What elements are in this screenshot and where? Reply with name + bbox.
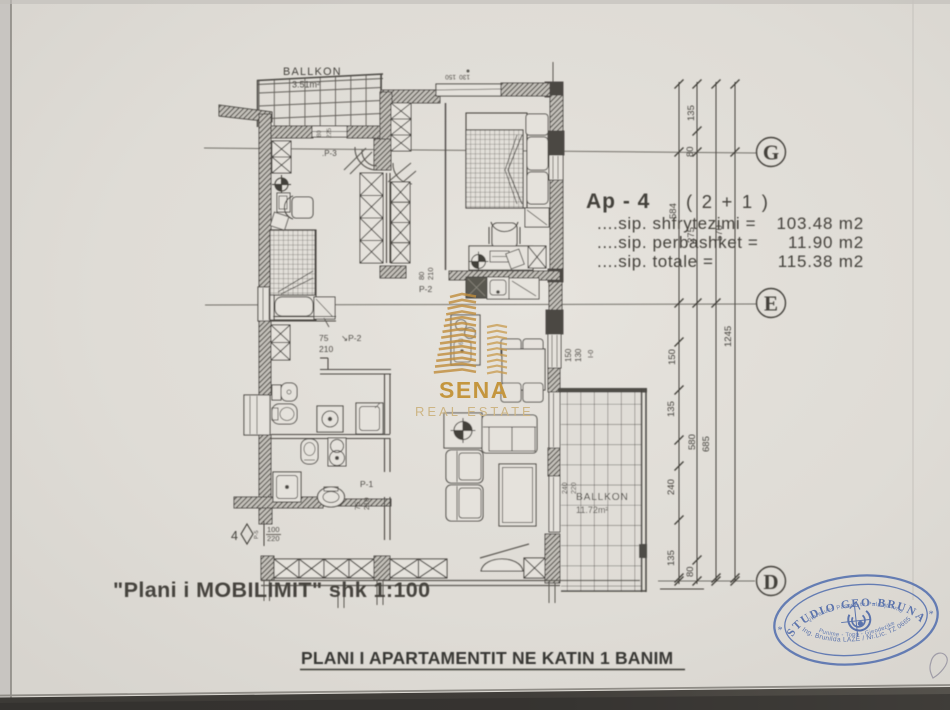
svg-text:.P-3: .P-3: [322, 149, 337, 158]
svg-text:240: 240: [666, 479, 677, 495]
svg-text:BALLKON: BALLKON: [283, 66, 342, 78]
svg-text:80: 80: [417, 272, 426, 280]
svg-text:4: 4: [231, 529, 238, 543]
svg-text:( 2 + 1 ): ( 2 + 1 ): [686, 191, 770, 212]
svg-text:P-5: P-5: [254, 530, 260, 539]
svg-text:685: 685: [701, 436, 712, 452]
svg-text:11.90 m2: 11.90 m2: [788, 233, 864, 252]
svg-text:220: 220: [571, 482, 578, 494]
svg-text:130: 130: [574, 348, 583, 362]
svg-text:SENA: SENA: [439, 377, 509, 403]
svg-text:75: 75: [353, 502, 362, 510]
svg-text:BALLKON: BALLKON: [576, 492, 629, 503]
svg-text:3.51m²: 3.51m²: [292, 80, 320, 90]
svg-text:Ap - 4: Ap - 4: [586, 190, 650, 213]
svg-text:150: 150: [445, 73, 456, 80]
svg-text:130: 130: [459, 73, 470, 80]
svg-text:115.38 m2: 115.38 m2: [778, 252, 864, 271]
svg-text:1245: 1245: [723, 326, 734, 347]
svg-text:103.48 m2: 103.48 m2: [776, 214, 864, 233]
svg-text:210: 210: [319, 344, 333, 354]
svg-text:75: 75: [319, 333, 329, 343]
svg-text:240: 240: [562, 482, 569, 494]
svg-text:P-2: P-2: [419, 284, 433, 294]
svg-text:80: 80: [685, 566, 696, 577]
svg-text:135: 135: [666, 550, 677, 566]
svg-text:100: 100: [267, 525, 280, 534]
svg-text:225: 225: [327, 127, 333, 138]
svg-text:210: 210: [362, 497, 371, 510]
svg-text:210: 210: [426, 267, 435, 280]
svg-text:....sip. perbashket =: ....sip. perbashket =: [597, 233, 758, 252]
svg-text:PLANI I APARTAMENTIT NE KATIN: PLANI I APARTAMENTIT NE KATIN 1 BANIM: [301, 648, 673, 668]
svg-text:80: 80: [685, 146, 696, 157]
svg-text:"Plani i MOBILIMIT" shk 1:100: "Plani i MOBILIMIT" shk 1:100: [113, 578, 431, 602]
svg-text:E: E: [764, 292, 778, 316]
svg-text:150: 150: [667, 349, 678, 365]
svg-text:....sip. totale =: ....sip. totale =: [597, 252, 714, 271]
svg-text:135: 135: [666, 401, 677, 417]
svg-text:....sip. shfrytezimi =: ....sip. shfrytezimi =: [597, 214, 756, 233]
svg-text:REAL ESTATE: REAL ESTATE: [415, 404, 534, 419]
svg-text:580: 580: [687, 434, 698, 450]
svg-text:↘P-2: ↘P-2: [341, 333, 362, 343]
svg-text:220: 220: [267, 534, 280, 543]
svg-text:I-0: I-0: [588, 350, 595, 358]
svg-text:11.72m²: 11.72m²: [576, 505, 608, 515]
svg-text:150: 150: [564, 348, 573, 362]
svg-text:D: D: [763, 570, 778, 594]
svg-text:135: 135: [686, 105, 697, 121]
svg-text:80: 80: [317, 130, 323, 137]
svg-text:G: G: [763, 141, 779, 165]
svg-text:P-1: P-1: [360, 479, 374, 489]
